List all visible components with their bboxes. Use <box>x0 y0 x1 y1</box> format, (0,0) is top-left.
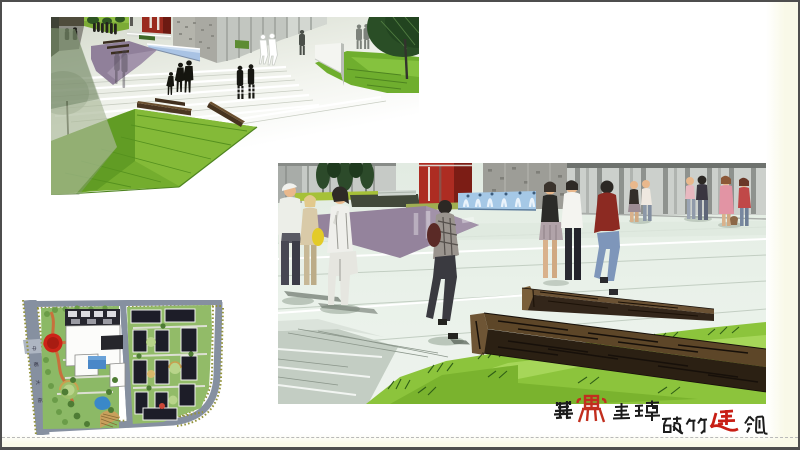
svg-text:街: 街 <box>36 397 43 403</box>
svg-text:中: 中 <box>30 345 37 351</box>
svg-text:都: 都 <box>32 362 38 368</box>
svg-text:大: 大 <box>34 379 41 385</box>
